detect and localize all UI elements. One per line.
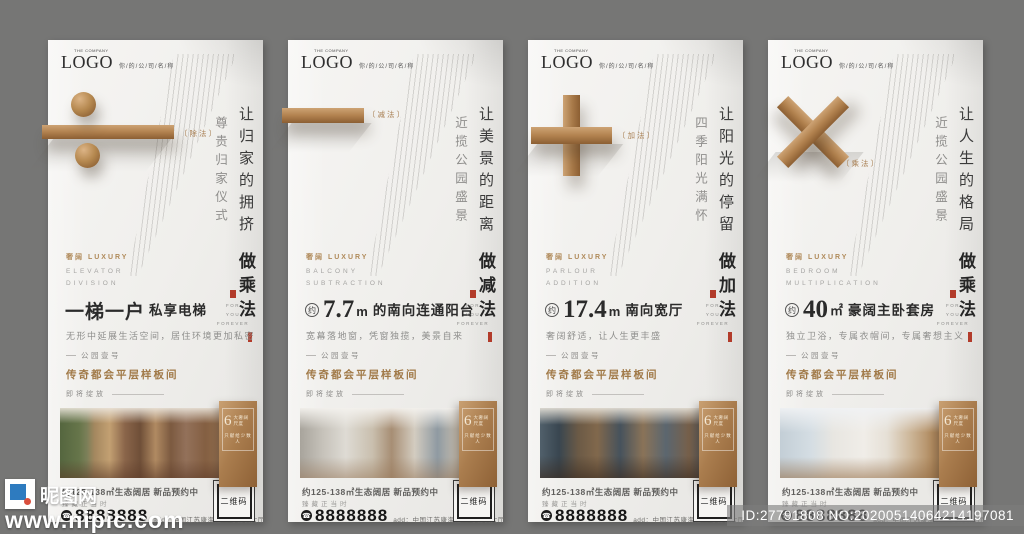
phone-number: 8888888	[315, 507, 388, 524]
area-info: 约125-138㎡生态阔居 新品预约中	[542, 486, 679, 498]
phone-number: 8888888	[795, 507, 868, 524]
phone-icon: ☎	[781, 510, 792, 521]
vertical-slogan-sub: 尊贵归家仪式	[211, 116, 230, 227]
project-block: 公园壹号 传奇都会平层样板间 即将绽放	[546, 350, 706, 399]
company-logo: THE COMPANYLOGO 你/的/公/司/名/称	[61, 53, 174, 73]
coming-soon: 即将绽放	[66, 389, 106, 399]
nipic-logo-icon	[5, 479, 35, 509]
ribbon-badge: 6大奢阔尺度 只献给少数人	[939, 401, 977, 487]
category-en: ELEVATOR DIVISION	[66, 266, 124, 291]
poster-addition: THE COMPANYLOGO 你/的/公/司/名/称 〔加法〕 让阳光的停留 …	[528, 40, 743, 522]
category-en: PARLOUR ADDITION	[546, 266, 601, 291]
phone-number: 8888888	[75, 507, 148, 524]
description: 宽幕落地窗，凭窗独揽，美景自来	[306, 329, 464, 342]
approx-circle: 约	[545, 303, 559, 317]
vertical-slogan-main: 让美景的距离	[475, 106, 496, 238]
area-info: 约125-138㎡生态阔居 新品预约中	[302, 486, 439, 498]
symbol-label: 〔乘法〕	[842, 158, 880, 169]
category-en: BEDROOM MULTIPLICATION	[786, 266, 881, 291]
coming-soon: 即将绽放	[546, 389, 586, 399]
logo-pre-text: THE COMPANY	[74, 48, 109, 53]
vertical-slogan-main: 让归家的拥挤	[235, 106, 256, 238]
symbol-shadow	[19, 139, 171, 183]
ribbon-badge: 6大奢阔尺度 只献给少数人	[699, 401, 737, 487]
area-info: 约125-138㎡生态阔居 新品预约中	[782, 486, 919, 498]
project-name: 公园壹号	[561, 350, 601, 361]
approx-circle: 约	[785, 303, 799, 317]
logo-company-name: 你/的/公/司/名/称	[599, 61, 654, 73]
for-you-forever: FOR YOU FOREVER	[936, 290, 970, 328]
vertical-slogan-main: 让阳光的停留	[715, 106, 736, 238]
company-logo: THE COMPANYLOGO 你/的/公/司/名/称	[541, 53, 654, 73]
poster-subtraction: THE COMPANYLOGO 你/的/公/司/名/称 〔减法〕 让美景的距离 …	[288, 40, 503, 522]
logo-company-name: 你/的/公/司/名/称	[119, 61, 174, 73]
description: 奢阔舒适，让人生更丰盛	[546, 329, 662, 342]
qr-label: 二维码	[221, 496, 248, 507]
red-seal	[728, 332, 732, 342]
showroom-name: 传奇都会平层样板间	[66, 367, 226, 382]
logo-text: LOGO	[61, 52, 113, 72]
ribbon-badge: 6大奢阔尺度 只献给少数人	[459, 401, 497, 487]
phone-icon: ☎	[301, 510, 312, 521]
logo-pre-text: THE COMPANY	[554, 48, 589, 53]
description: 无形中延展生活空间，居住环境更加私密	[66, 329, 255, 342]
symbol-label: 〔减法〕	[368, 109, 406, 120]
red-seal	[230, 290, 236, 298]
project-block: 公园壹号 传奇都会平层样板间 即将绽放	[66, 350, 226, 399]
company-logo: THE COMPANYLOGO 你/的/公/司/名/称	[781, 53, 894, 73]
category-en: BALCONY SUBTRACTION	[306, 266, 386, 291]
project-name: 公园壹号	[321, 350, 361, 361]
area-info: 约125-138㎡生态阔居 新品预约中	[62, 486, 199, 498]
phone-number: 8888888	[555, 507, 628, 524]
vertical-slogan-sub: 四季阳光满怀	[691, 116, 710, 227]
red-seal	[470, 290, 476, 298]
symbol-shadow	[260, 123, 371, 163]
qr-label: 二维码	[461, 496, 488, 507]
poster-series-canvas: THE COMPANYLOGO 你/的/公/司/名/称 〔除法〕 让归家的拥挤 …	[0, 0, 1024, 534]
project-block: 公园壹号 传奇都会平层样板间 即将绽放	[786, 350, 946, 399]
coming-soon: 即将绽放	[786, 389, 826, 399]
ribbon-badge: 6大奢阔尺度 只献给少数人	[219, 401, 257, 487]
logo-pre-text: THE COMPANY	[314, 48, 349, 53]
red-seal	[710, 290, 716, 298]
for-you-forever: FOR YOU FOREVER	[456, 290, 490, 328]
red-seal	[968, 332, 972, 342]
red-seal	[488, 332, 492, 342]
luxury-label: 奢阔 LUXURY	[546, 252, 608, 262]
company-logo: THE COMPANYLOGO 你/的/公/司/名/称	[301, 53, 414, 73]
luxury-label: 奢阔 LUXURY	[306, 252, 368, 262]
vertical-slogan-sub: 近揽公园盛景	[931, 116, 950, 227]
showroom-name: 传奇都会平层样板间	[306, 367, 466, 382]
for-you-forever: FOR YOU FOREVER	[696, 290, 730, 328]
symbol-shadow	[503, 144, 623, 188]
qr-label: 二维码	[941, 496, 968, 507]
headline: 一梯一户 私享电梯	[65, 294, 207, 322]
coming-soon: 即将绽放	[306, 389, 346, 399]
logo-text: LOGO	[781, 52, 833, 72]
approx-circle: 约	[305, 303, 319, 317]
project-block: 公园壹号 传奇都会平层样板间 即将绽放	[306, 350, 466, 399]
logo-text: LOGO	[301, 52, 353, 72]
qr-label: 二维码	[701, 496, 728, 507]
project-name: 公园壹号	[801, 350, 841, 361]
logo-company-name: 你/的/公/司/名/称	[839, 61, 894, 73]
logo-pre-text: THE COMPANY	[794, 48, 829, 53]
logo-text: LOGO	[541, 52, 593, 72]
showroom-name: 传奇都会平层样板间	[786, 367, 946, 382]
headline: 约 40 ㎡ 豪阔主卧套房	[785, 294, 935, 322]
showroom-name: 传奇都会平层样板间	[546, 367, 706, 382]
logo-company-name: 你/的/公/司/名/称	[359, 61, 414, 73]
phone-icon: ☎	[61, 510, 72, 521]
poster-division: THE COMPANYLOGO 你/的/公/司/名/称 〔除法〕 让归家的拥挤 …	[48, 40, 263, 522]
headline: 约 17.4 m 南向宽厅	[545, 294, 683, 322]
poster-multiplication: THE COMPANYLOGO 你/的/公/司/名/称 〔乘法〕 让人生的格局 …	[768, 40, 983, 522]
phone-icon: ☎	[541, 510, 552, 521]
for-you-forever: FOR YOU FOREVER	[216, 290, 250, 328]
red-seal	[950, 290, 956, 298]
luxury-label: 奢阔 LUXURY	[66, 252, 128, 262]
luxury-label: 奢阔 LUXURY	[786, 252, 848, 262]
project-name: 公园壹号	[81, 350, 121, 361]
vertical-slogan-main: 让人生的格局	[955, 106, 976, 238]
description: 独立卫浴，专属衣帽间，专属奢想主义	[786, 329, 965, 342]
vertical-slogan-sub: 近揽公园盛景	[451, 116, 470, 227]
headline: 约 7.7 m 的南向连通阳台	[305, 294, 474, 322]
symbol-label: 〔加法〕	[618, 130, 656, 141]
